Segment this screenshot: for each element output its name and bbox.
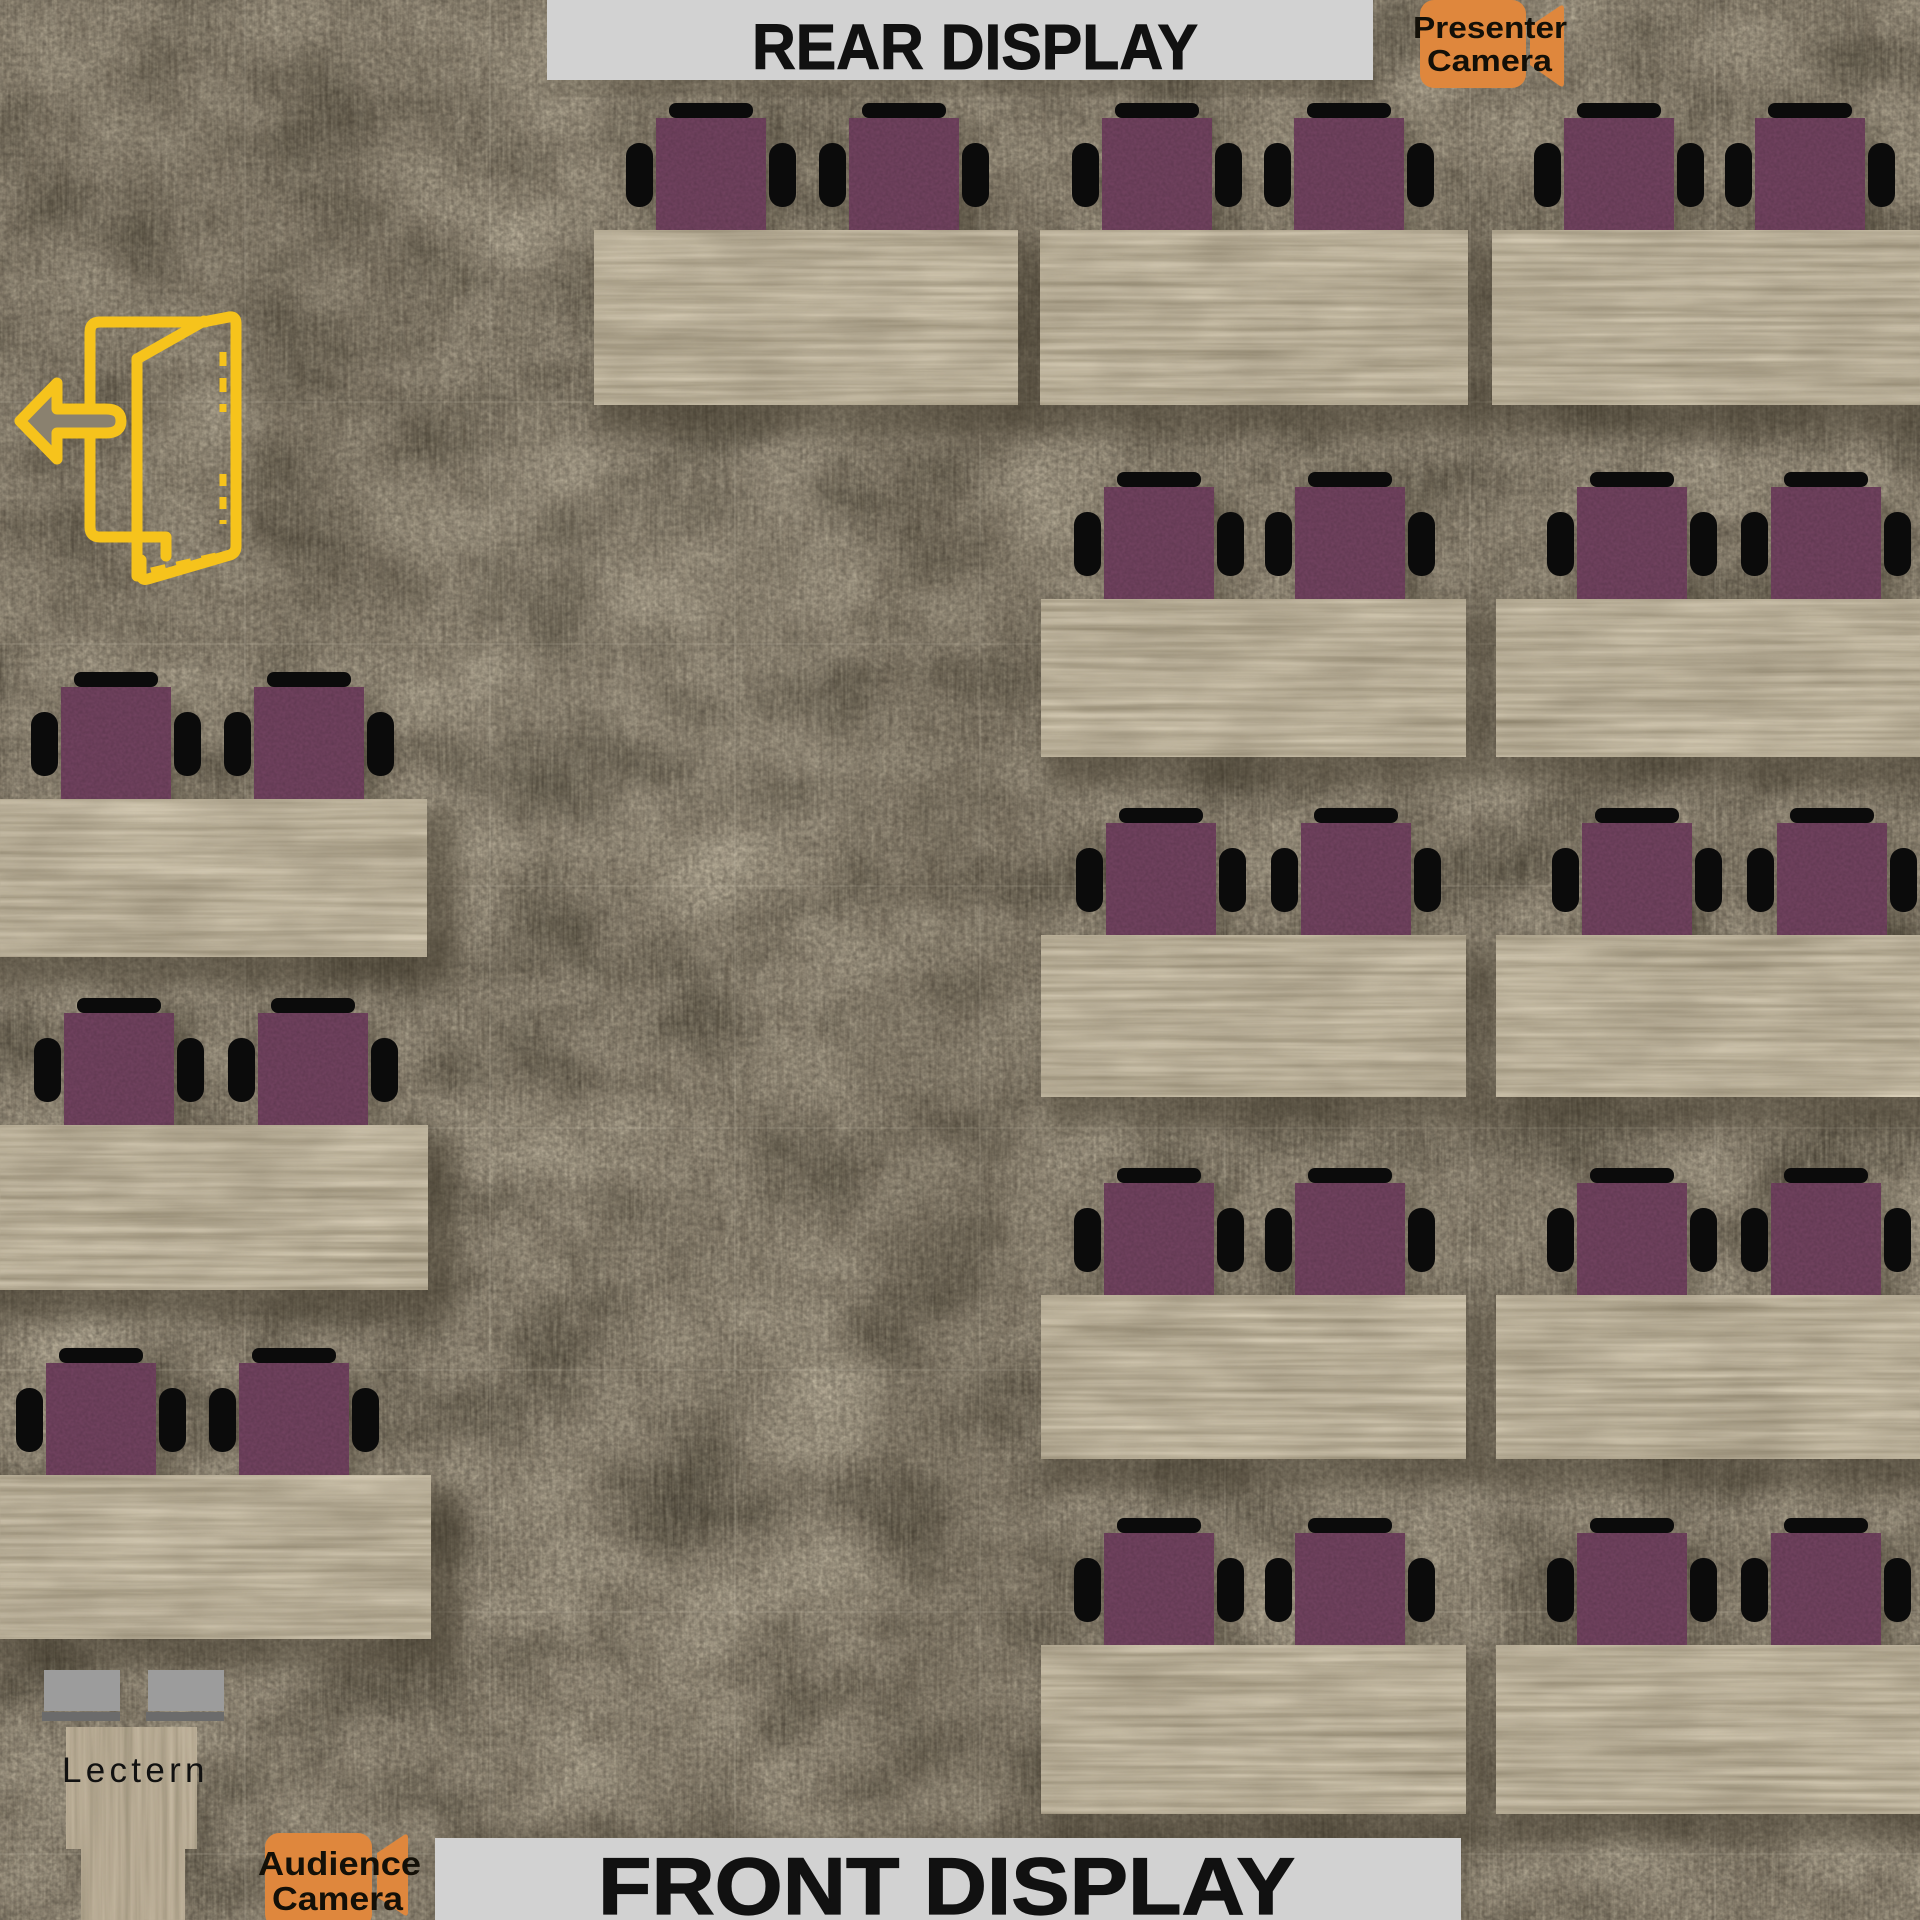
svg-text:FRONT DISPLAY: FRONT DISPLAY [598,1842,1295,1920]
svg-text:Camera: Camera [272,1880,404,1917]
svg-text:Presenter: Presenter [1413,10,1567,45]
svg-text:Audience: Audience [258,1845,421,1882]
svg-text:REAR DISPLAY: REAR DISPLAY [752,11,1198,83]
svg-text:Camera: Camera [1427,43,1553,78]
